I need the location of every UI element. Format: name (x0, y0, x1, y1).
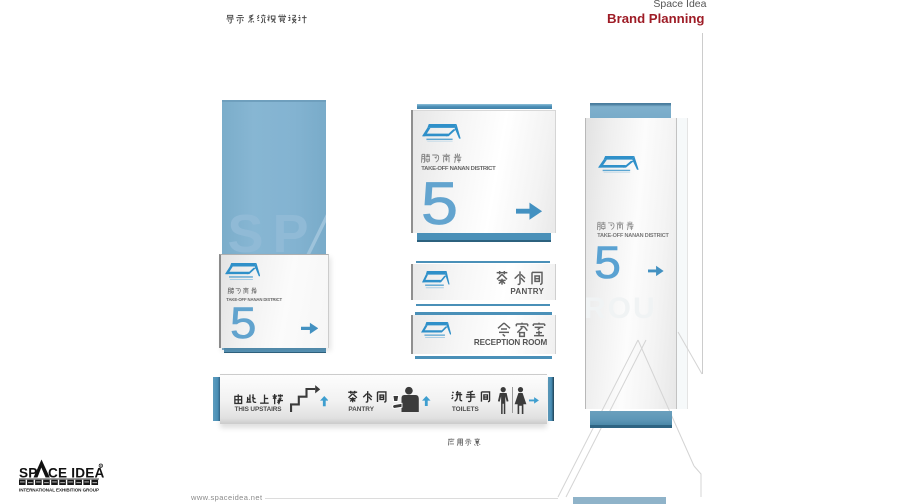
svg-text:INTERNATIONAL EXHIBITION GROUP: INTERNATIONAL EXHIBITION GROUP (19, 487, 99, 492)
svg-text:CE IDEA: CE IDEA (48, 466, 105, 481)
svg-text:SP: SP (19, 466, 38, 481)
